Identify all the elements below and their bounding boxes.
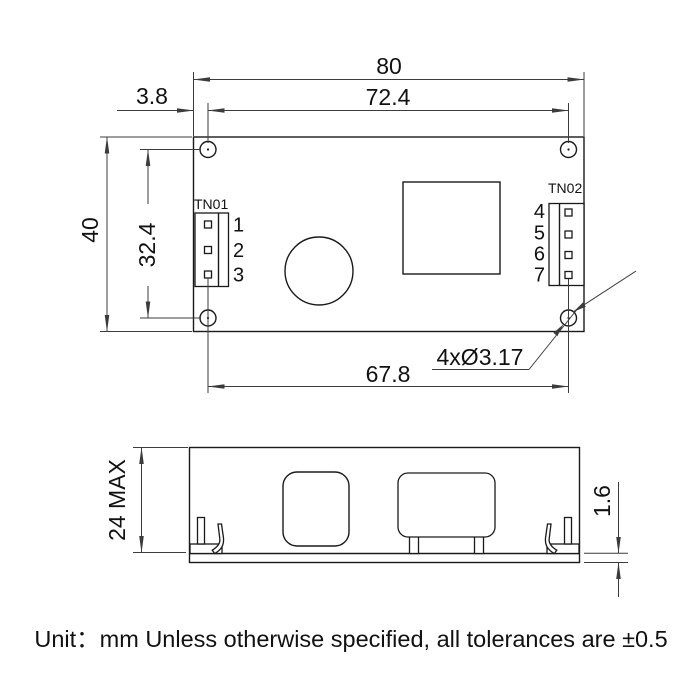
- connector-tn02-pin4-pad: [565, 209, 572, 216]
- connector-tn02-pin7-pad: [565, 272, 572, 279]
- side-profile-outline: [190, 448, 580, 563]
- round-component: [285, 237, 353, 305]
- side-connector-left: [190, 518, 224, 554]
- square-component: [403, 182, 500, 274]
- technical-drawing: TN01 1 2 3 TN02 4 5 6 7 8: [0, 0, 700, 700]
- mounting-hole-top-left: [200, 142, 216, 158]
- mounting-hole-top-right: [561, 142, 577, 158]
- dimension-hole-edge-offset: 3.8: [117, 83, 194, 111]
- connector-tn01-pin1-pad: [205, 221, 212, 228]
- side-view: [190, 448, 580, 563]
- connector-tn02: TN02 4 5 6 7: [534, 180, 584, 287]
- connector-pin: [198, 518, 205, 545]
- dimension-value: 40: [77, 217, 103, 243]
- connector-tn02-label: TN02: [548, 180, 582, 196]
- top-view: TN01 1 2 3 TN02 4 5 6 7: [194, 137, 585, 332]
- dimension-value: 24 MAX: [104, 459, 130, 541]
- dimension-value: 80: [376, 53, 402, 79]
- dimension-value: 32.4: [134, 222, 160, 267]
- pin-number: 7: [534, 265, 545, 287]
- dimension-pcb-thickness: 1.6: [584, 482, 628, 597]
- dimension-value: 72.4: [366, 84, 411, 110]
- pin-number: 1: [233, 215, 244, 237]
- hole-center-mark: [207, 148, 209, 150]
- tolerance-note: Unit：mm Unless otherwise specified, all …: [34, 626, 667, 652]
- drawing-canvas: TN01 1 2 3 TN02 4 5 6 7 8: [0, 0, 700, 700]
- dimension-max-height: 24 MAX: [104, 448, 188, 553]
- connector-tn01-label: TN01: [194, 196, 228, 212]
- pcb-outline-top-view: [194, 137, 585, 332]
- dimension-hole-span-x: 72.4: [208, 84, 569, 143]
- hole-center-mark: [567, 148, 569, 150]
- dimension-hole-span-y: 32.4: [134, 150, 201, 319]
- pin-number: 3: [233, 265, 244, 287]
- dimension-value: 3.8: [136, 83, 168, 109]
- connector-tn01-pin2-pad: [205, 247, 212, 254]
- pin-number: 5: [534, 223, 545, 245]
- leader-line: [529, 310, 577, 370]
- dimension-value: 67.8: [366, 361, 411, 387]
- connector-tn01-pin3-pad: [205, 271, 212, 278]
- dimension-bottom-hole-span: 67.8: [208, 278, 569, 393]
- side-connector-right: [545, 518, 579, 554]
- connector-tn01: TN01 1 2 3: [194, 196, 244, 287]
- leader-arrowhead: [553, 324, 563, 336]
- pin-number: 6: [534, 244, 545, 266]
- pin-number: 2: [233, 240, 244, 262]
- rounded-component-right: [398, 473, 495, 554]
- dimension-value: 1.6: [589, 485, 615, 517]
- rounded-component-left: [283, 472, 349, 546]
- dimension-value: 4xØ3.17: [437, 344, 524, 370]
- connector-tn02-pin5-pad: [565, 231, 572, 238]
- connector-tn02-pin6-pad: [565, 252, 572, 259]
- pin-number: 4: [534, 201, 545, 223]
